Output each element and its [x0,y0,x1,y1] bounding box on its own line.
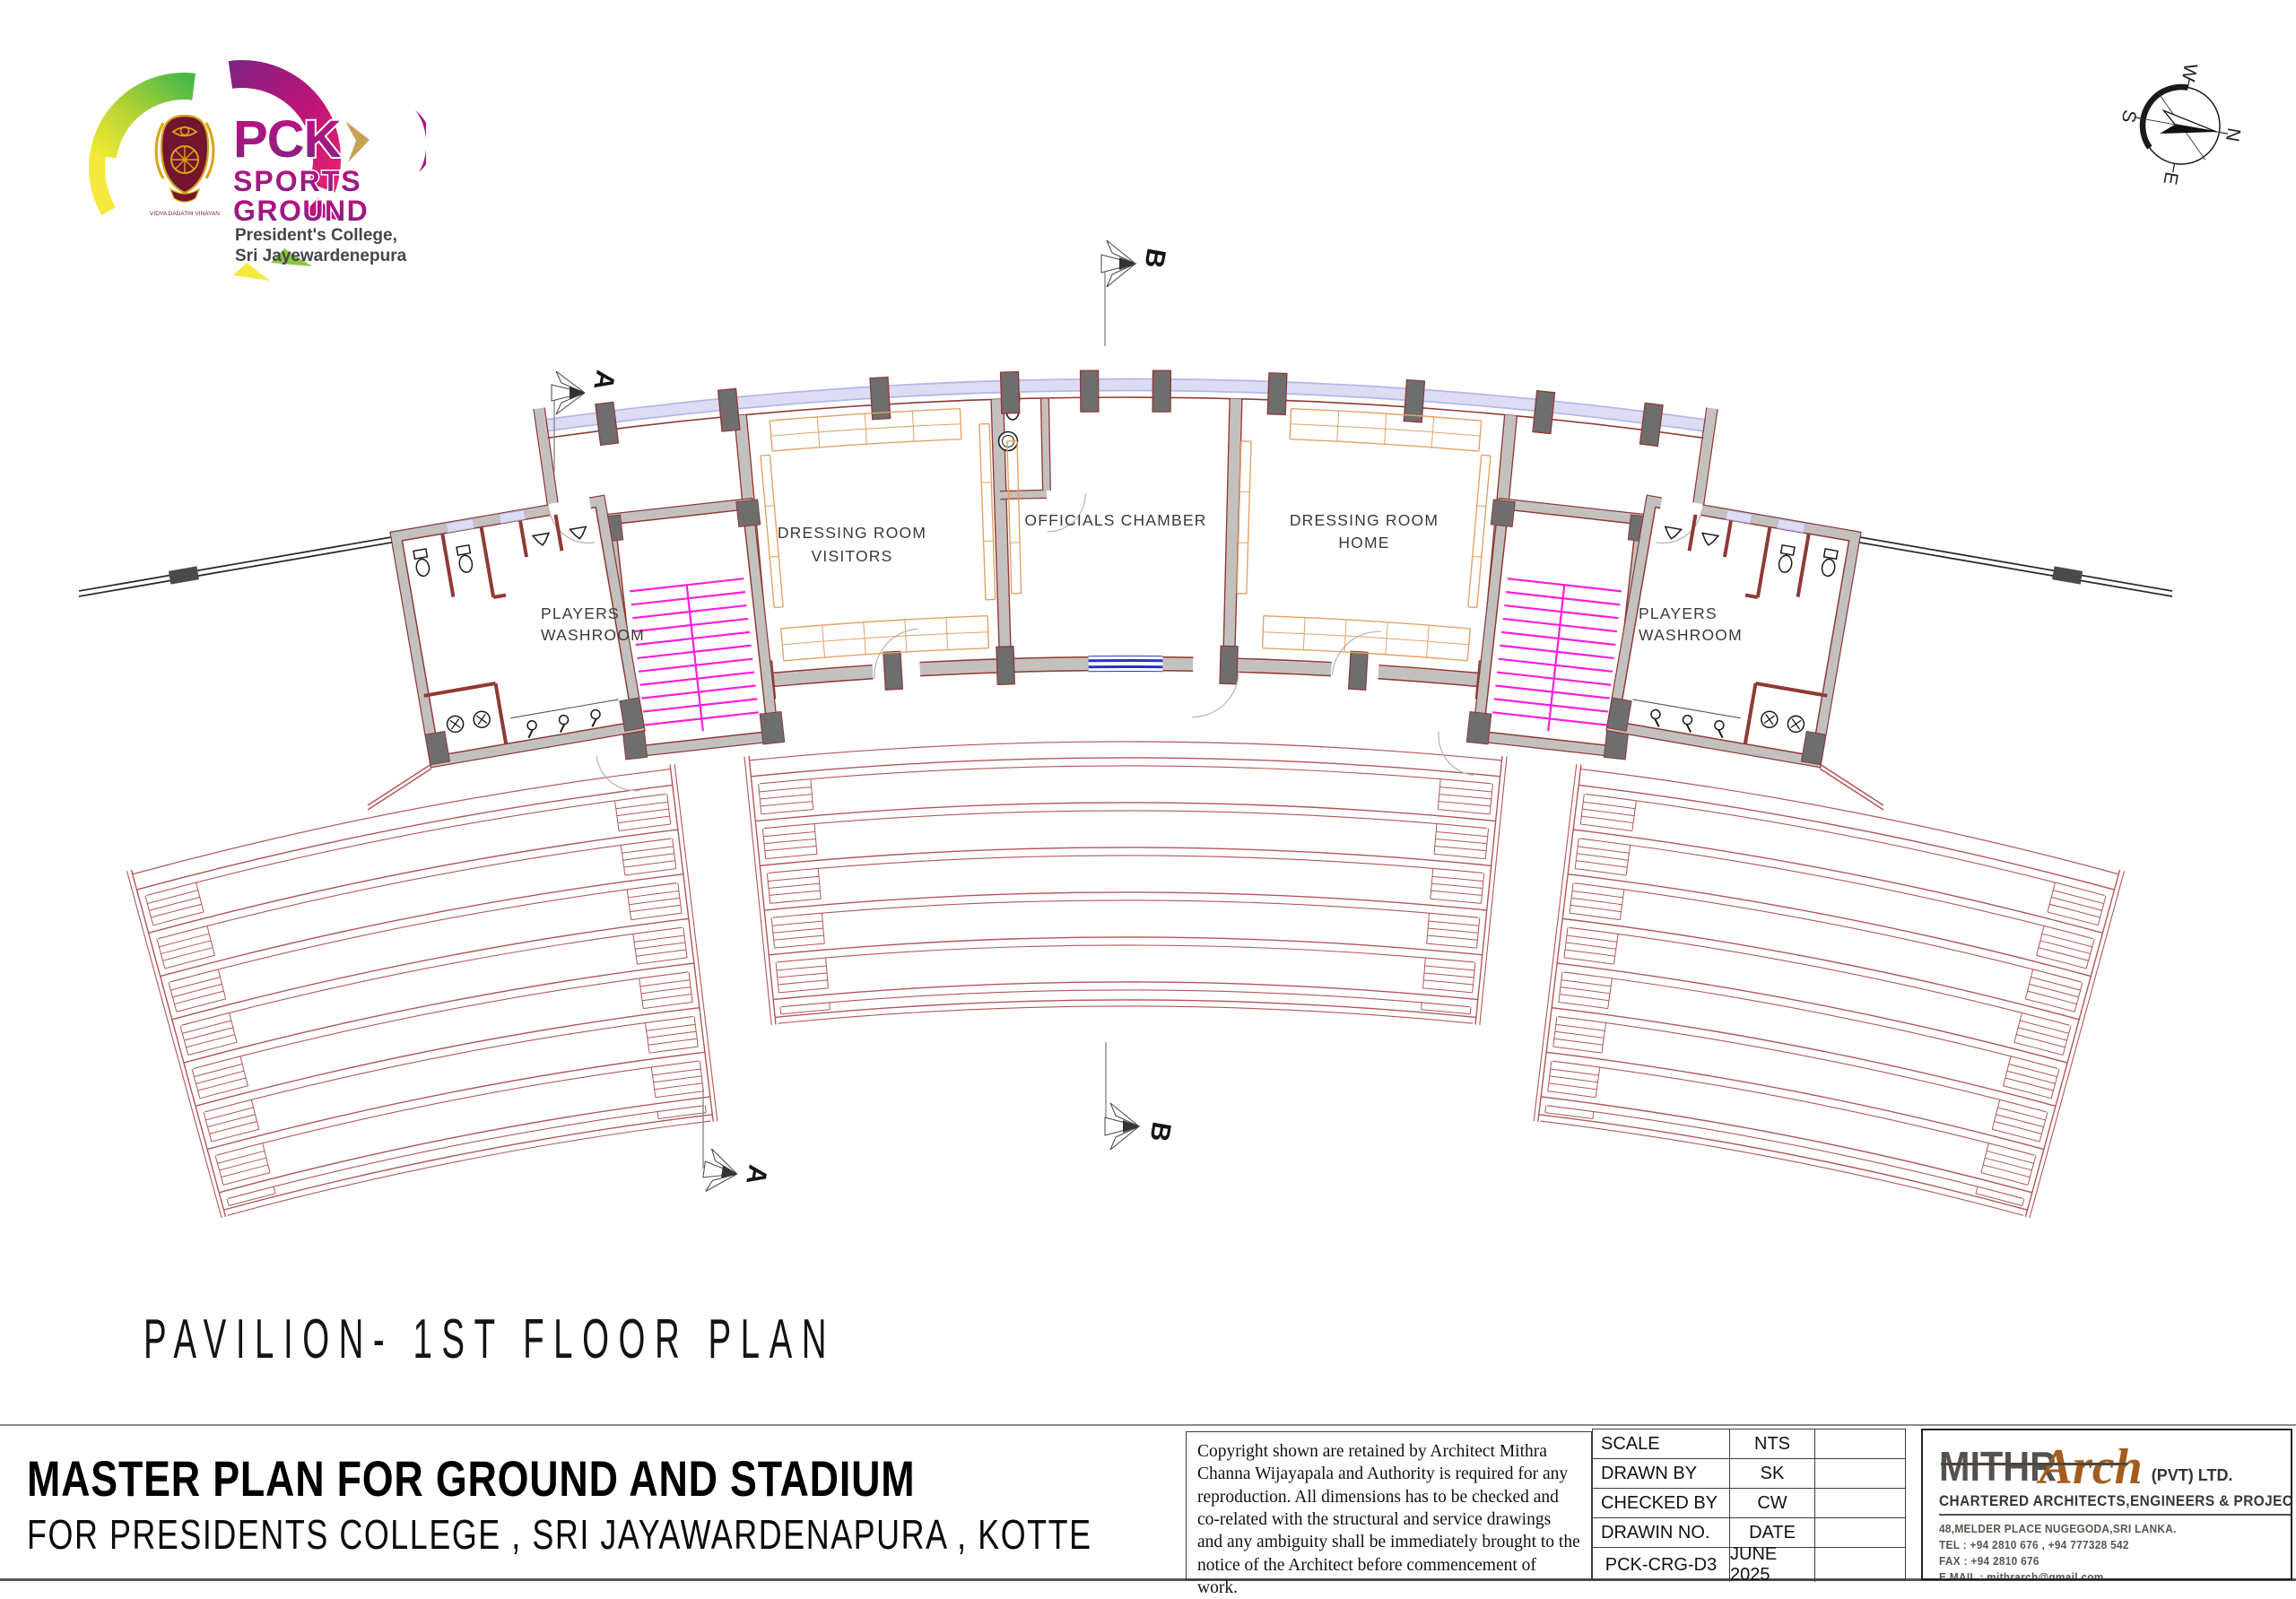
table-row: SCALE NTS [1593,1430,1905,1459]
table-cell-label: DRAWN BY [1593,1459,1730,1488]
table-cell-label: DRAWIN NO. [1593,1518,1730,1547]
project-subtitle: FOR PRESIDENTS COLLEGE , SRI JAYAWARDENA… [27,1510,1092,1559]
marker-letter-a2: A [740,1162,772,1186]
firm-email: E MAIL : mithrarch@gmail.com [1939,1569,2273,1580]
marker-letter-a: A [587,368,620,392]
compass-e: E [2160,170,2182,187]
label-washroom-right-2: WASHROOM [1639,626,1743,644]
compass-s: S [2118,109,2140,125]
firm-logo-strike [1941,1463,2127,1465]
label-officials-chamber: OFFICIALS CHAMBER [1024,511,1206,529]
titleblock-top-rule [0,1424,2296,1426]
section-marker-b-bottom: B [1105,1042,1177,1150]
marker-letter-b: B [1138,246,1170,270]
table-cell-label: SCALE [1593,1430,1730,1458]
firm-tel: TEL : +94 2810 676 , +94 777328 542 [1939,1537,2273,1553]
label-dressing-visitors-2: VISITORS [812,547,893,565]
compass-n: N [2222,126,2244,143]
table-cell-empty [1815,1548,1905,1582]
firm-address-block: 48,MELDER PLACE NUGEGODA,SRI LANKA. TEL … [1939,1521,2273,1580]
drawing-sheet: VIDYA DADATHI VINAYAN PCK SPORTS GROUND … [0,0,2296,1583]
table-cell-empty [1815,1518,1905,1547]
architect-firm-panel: MITHRArch(PVT) LTD. CHARTERED ARCHITECTS… [1921,1429,2292,1580]
marker-letter-b2: B [1144,1119,1176,1143]
table-cell-empty [1815,1430,1905,1458]
plan-walls [390,370,1861,795]
label-washroom-left-1: PLAYERS [541,604,620,622]
project-title: MASTER PLAN FOR GROUND AND STADIUM [27,1449,915,1508]
table-cell-empty [1815,1459,1905,1488]
section-marker-a-bottom: A [701,1089,773,1195]
label-washroom-right-1: PLAYERS [1639,604,1718,622]
firm-name-brown: Arch [2039,1438,2143,1496]
seating-tiers [126,742,2124,1218]
firm-logo: MITHRArch(PVT) LTD. [1939,1436,2291,1493]
info-table: SCALE NTS DRAWN BY SK CHECKED BY CW DRAW… [1592,1429,1906,1580]
stair [1434,494,1652,791]
table-cell-label: CHECKED BY [1593,1489,1730,1517]
firm-tagline: CHARTERED ARCHITECTS,ENGINEERS & PROJECT… [1939,1493,2292,1516]
firm-address: 48,MELDER PLACE NUGEGODA,SRI LANKA. [1939,1521,2273,1537]
firm-suffix: (PVT) LTD. [2152,1466,2233,1484]
table-row: DRAWN BY SK [1593,1459,1905,1489]
table-cell-value: DATE [1730,1518,1815,1547]
section-marker-b-top: B [1101,240,1171,346]
north-compass-icon: N E S W [2108,53,2254,196]
compass-w: W [2178,62,2201,83]
table-cell-date: JUNE 2025 [1730,1548,1815,1582]
table-cell-value: CW [1730,1489,1815,1517]
table-row: PCK-CRG-D3 JUNE 2025 [1593,1548,1905,1582]
table-cell-value: NTS [1730,1430,1815,1458]
label-washroom-left-2: WASHROOM [541,626,645,644]
label-dressing-home-1: DRESSING ROOM [1290,511,1439,529]
plan-decorations [79,536,2172,810]
firm-fax: FAX : +94 2810 676 [1939,1553,2273,1569]
table-cell-empty [1815,1489,1905,1517]
label-dressing-home-2: HOME [1338,534,1389,552]
label-dressing-visitors-1: DRESSING ROOM [778,524,926,542]
drawing-title: PAVILION- 1ST FLOOR PLAN [143,1308,836,1371]
table-cell-drawing-no: PCK-CRG-D3 [1593,1548,1730,1582]
table-cell-value: SK [1730,1459,1815,1488]
copyright-note: Copyright shown are retained by Architec… [1186,1431,1592,1580]
table-row: CHECKED BY CW [1593,1489,1905,1518]
